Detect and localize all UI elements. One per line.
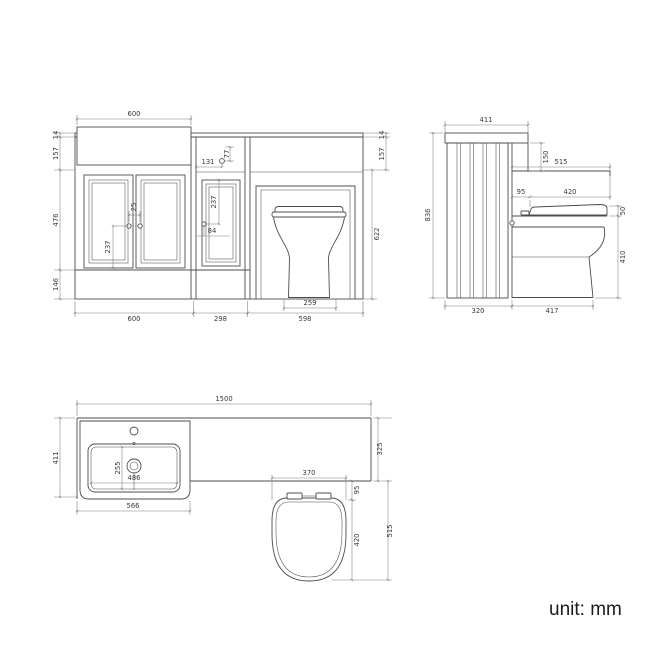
- dim-wc-unit-width: 598: [299, 315, 312, 323]
- dim-seat-back-gap: 95: [517, 188, 526, 196]
- panel-fluting: [457, 143, 500, 298]
- dim-mid-door-top-to-handle: 237: [210, 196, 218, 209]
- toilet-lid-front: [275, 207, 343, 213]
- cabinet-top-cap: [445, 133, 528, 143]
- dim-worktop-thickness: 14: [52, 131, 60, 140]
- dim-seat-thickness: 50: [619, 207, 627, 216]
- plan-view: 1500 411 325 515 95 420 370 566 486 255: [52, 395, 394, 581]
- dim-seat-length: 420: [564, 188, 577, 196]
- dim-cabinet-depth: 320: [472, 307, 485, 315]
- dim-worktop-recess-height: 150: [542, 151, 550, 164]
- dim-basin-top-width: 600: [128, 110, 141, 118]
- toilet-seat-front: [272, 212, 346, 217]
- dim-seat-width: 370: [303, 469, 316, 477]
- flush-button: [220, 159, 225, 164]
- technical-drawing-page: 600 14 157 476 146 14 157 622 600 298 59…: [0, 0, 650, 650]
- dim-plan-seat-back-gap: 95: [353, 486, 361, 495]
- dim-wc-projection: 515: [386, 525, 394, 538]
- basin-front: [77, 127, 191, 165]
- side-dimension-lines: [429, 121, 622, 310]
- hinge-fixing: [510, 221, 514, 225]
- pan-front-curve: [589, 227, 605, 257]
- side-dimension-labels: 411 150 836 515 95 420 50 410 320 417: [424, 116, 627, 315]
- toilet-seat-plan-outer: [272, 498, 346, 581]
- dim-mid-handle-offset: 84: [208, 227, 217, 235]
- side-structure: [445, 133, 610, 298]
- dim-pan-projection: 417: [546, 307, 559, 315]
- waste-outer: [127, 459, 141, 473]
- dim-handle-to-door-bottom: 237: [104, 241, 112, 254]
- dim-overall-width: 1500: [215, 395, 232, 403]
- dim-cabinet-top-depth: 411: [480, 116, 493, 124]
- wc-unit-front: [256, 186, 355, 299]
- dim-button-offset-vertical: 77: [223, 150, 231, 159]
- tap-hole: [130, 427, 138, 435]
- dim-worktop-depth: 515: [555, 158, 568, 166]
- toilet-bowl-front: [274, 217, 345, 298]
- dim-basin-bowl-width: 486: [128, 474, 141, 482]
- dim-handle-spacing: 25: [130, 203, 138, 212]
- unit-label: unit: mm: [549, 599, 622, 621]
- dim-door-height: 476: [52, 214, 60, 227]
- dim-button-offset-horizontal: 131: [202, 158, 215, 166]
- door-handle: [138, 224, 142, 228]
- dim-vanity-depth: 411: [52, 452, 60, 465]
- dim-pan-height: 410: [619, 251, 627, 264]
- dim-plan-seat-length: 420: [353, 534, 361, 547]
- dim-right-worktop-thickness: 14: [378, 131, 386, 140]
- dim-overall-height: 836: [424, 209, 432, 222]
- seat-hinge-plan: [316, 493, 331, 499]
- waste-inner: [130, 462, 138, 470]
- link-unit-door: [202, 159, 240, 266]
- front-view: 600 14 157 476 146 14 157 622 600 298 59…: [52, 110, 390, 323]
- side-view: 411 150 836 515 95 420 50 410 320 417: [424, 116, 627, 315]
- dim-plan-worktop-depth: 325: [376, 443, 384, 456]
- dim-carcass-height: 622: [373, 228, 381, 241]
- dimension-drawing: 600 14 157 476 146 14 157 622 600 298 59…: [0, 0, 650, 650]
- seat-hinge: [521, 211, 529, 215]
- basin-console-plan: [80, 421, 190, 499]
- dim-basin-unit-width: 566: [127, 502, 140, 510]
- dim-vanity-width: 600: [128, 315, 141, 323]
- dim-pan-base-width: 259: [304, 299, 317, 307]
- vanity-doors: [84, 175, 185, 268]
- dim-plinth-height: 146: [52, 278, 60, 291]
- cabinet-side-panel: [447, 143, 508, 298]
- toilet-seat-side: [529, 205, 607, 216]
- dim-link-unit-width: 298: [214, 315, 227, 323]
- seat-hinge-plan: [287, 493, 302, 499]
- dim-apron-height: 157: [52, 147, 60, 160]
- dim-right-apron-height: 157: [378, 148, 386, 161]
- dim-basin-bowl-depth: 255: [114, 462, 122, 475]
- plan-structure: [77, 418, 371, 581]
